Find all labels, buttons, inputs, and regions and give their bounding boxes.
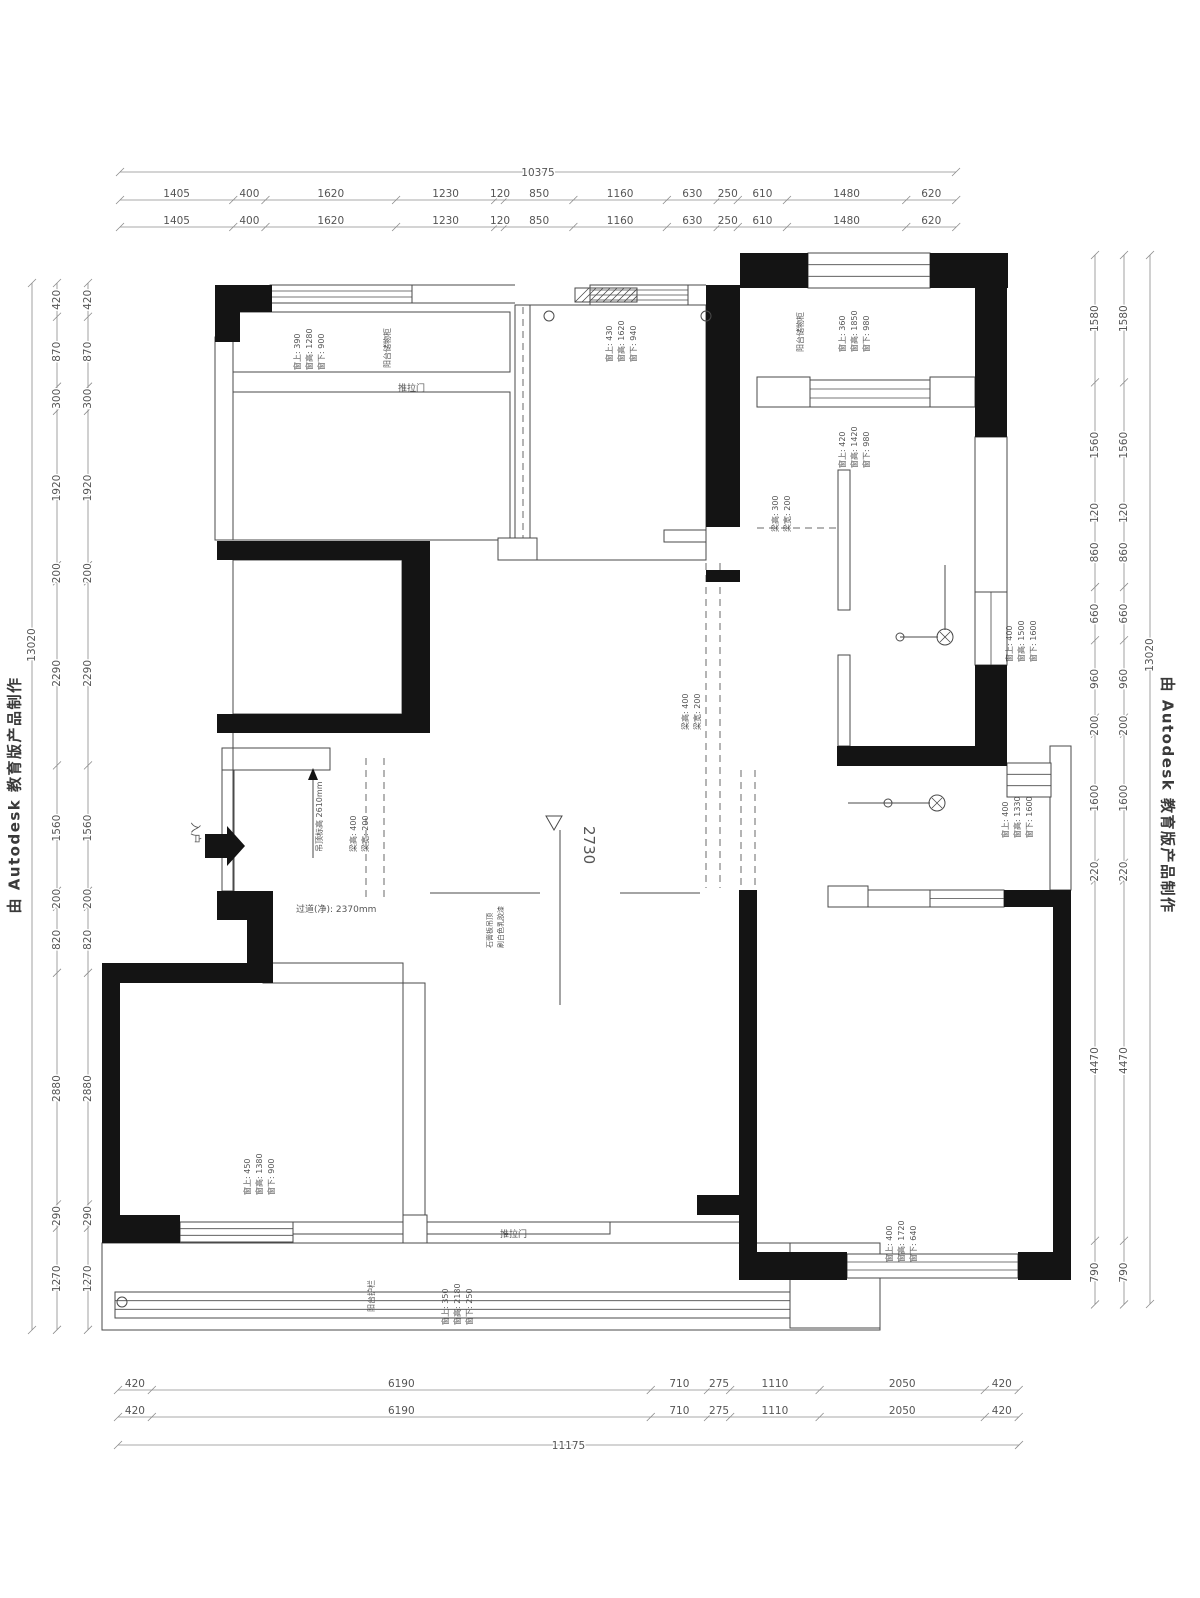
window-note-4-line: 窗下: 980 [861, 431, 871, 468]
hatch-line [575, 288, 589, 302]
dim-value: 1560 [51, 815, 63, 842]
dim-value: 300 [82, 389, 94, 409]
wall-segment [837, 746, 1007, 766]
dim-value: 870 [82, 342, 94, 362]
window-note-7-line: 窗下: 900 [266, 1158, 276, 1195]
window-note-8-line: 窗下: 250 [464, 1288, 474, 1325]
dim-value: 6190 [388, 1378, 415, 1390]
dim-value: 790 [1118, 1263, 1130, 1283]
window-note-2-line: 窗高: 1620 [616, 320, 626, 362]
window-symbol [180, 1222, 293, 1242]
cabinet-label-left-line: 阳台储物柜 [382, 328, 392, 368]
ceiling-finish-note: 石膏板吊顶刷白色乳胶漆 [485, 906, 505, 948]
wall-segment [102, 963, 120, 1243]
window-symbol [808, 253, 930, 288]
dim-value: 120 [490, 215, 510, 227]
dim-value: 1110 [762, 1405, 789, 1417]
dim-overall: 10375 [521, 167, 554, 179]
beam-note-1-line: 梁高: 400 [348, 815, 358, 852]
window-note-7-line: 窗上: 450 [242, 1158, 252, 1195]
wall-segment [739, 1252, 847, 1280]
dim-value: 870 [51, 342, 63, 362]
dim-value: 4470 [1089, 1047, 1101, 1074]
beam-note-1: 梁高: 400梁宽: 200 [348, 815, 370, 852]
window-note-2-line: 窗上: 430 [604, 325, 614, 362]
column-footing [828, 886, 868, 907]
dim-value: 2880 [51, 1075, 63, 1102]
window-note-7: 窗上: 450窗高: 1380窗下: 900 [242, 1153, 276, 1195]
dim-value: 2050 [889, 1378, 916, 1390]
dim-value: 790 [1089, 1263, 1101, 1283]
wall-segment [739, 890, 757, 1280]
window-note-5-line: 窗上: 400 [1004, 625, 1014, 662]
cabinet-label-left: 阳台储物柜 [382, 328, 392, 368]
dim-value: 420 [125, 1378, 145, 1390]
dim-value: 220 [1118, 862, 1130, 882]
cabinet-label-right: 阳台储物柜 [795, 312, 805, 352]
dim-value: 1480 [833, 215, 860, 227]
window-symbol [270, 285, 412, 303]
window-note-5-line: 窗下: 1600 [1028, 620, 1038, 662]
window-note-6-line: 窗上: 400 [1000, 801, 1010, 838]
dim-value: 200 [1089, 716, 1101, 736]
dim-value: 290 [82, 1206, 94, 1226]
dim-value: 400 [239, 215, 259, 227]
dim-value: 420 [992, 1405, 1012, 1417]
window-note-7-line: 窗高: 1380 [254, 1153, 264, 1195]
dim-value: 630 [682, 188, 702, 200]
ceiling-finish-note-line: 石膏板吊顶 [485, 913, 494, 948]
floorplan-page: 由 Autodesk 教育版产品制作 由 Autodesk 教育版产品制作 10… [0, 0, 1200, 1598]
window-note-3-line: 窗上: 360 [837, 315, 847, 352]
dim-value: 850 [529, 215, 549, 227]
dim-value: 1110 [762, 1378, 789, 1390]
dim-value: 860 [1118, 542, 1130, 562]
dim-value: 200 [82, 889, 94, 909]
wall-thin [293, 1222, 610, 1234]
window-note-6-line: 窗下: 1600 [1024, 796, 1034, 838]
dim-value: 290 [51, 1206, 63, 1226]
dim-value: 1405 [163, 215, 190, 227]
wall-thin [757, 377, 810, 407]
dim-value: 1600 [1089, 785, 1101, 812]
dim-value: 610 [752, 215, 772, 227]
ceiling-height-note: 吊顶标高 2610mm [314, 781, 324, 852]
window-note-9-line: 窗高: 1720 [896, 1220, 906, 1262]
beam-note-2-line: 梁宽: 200 [692, 693, 702, 730]
balcony-label: 阳台护栏 [366, 1280, 376, 1312]
dim-value: 6190 [388, 1405, 415, 1417]
elevation-marker-icon [546, 816, 562, 830]
dim-value: 620 [921, 215, 941, 227]
window-note-8-line: 窗高: 2180 [452, 1283, 462, 1325]
wall-thin [233, 392, 510, 540]
window-note-6-line: 窗高: 1330 [1012, 796, 1022, 838]
dim-value: 1480 [833, 188, 860, 200]
dim-value: 250 [718, 188, 738, 200]
window-note-1-line: 窗下: 900 [316, 333, 326, 370]
dim-value: 1560 [1118, 432, 1130, 459]
wall-segment [697, 1195, 740, 1215]
dim-value: 200 [51, 889, 63, 909]
window-note-3-line: 窗高: 1850 [849, 310, 859, 352]
dim-value: 420 [992, 1378, 1012, 1390]
beam-note-2-line: 梁高: 400 [680, 693, 690, 730]
wall-thin [263, 963, 403, 983]
dim-value: 820 [82, 930, 94, 950]
wall-segment [217, 891, 273, 920]
dim-value: 1920 [82, 475, 94, 502]
wall-thin [403, 983, 425, 1222]
window-note-1: 窗上: 390窗高: 1280窗下: 900 [292, 328, 326, 370]
ceiling-height-note-line: 吊顶标高 2610mm [314, 781, 324, 852]
dim-value: 960 [1118, 669, 1130, 689]
sliding-door-bottom-line: 推拉门 [500, 1228, 527, 1240]
dim-value: 1405 [163, 188, 190, 200]
dim-value: 660 [1118, 604, 1130, 624]
beam-note-1-line: 梁宽: 200 [360, 815, 370, 852]
window-note-1-line: 窗上: 390 [292, 333, 302, 370]
dim-overall: 11175 [552, 1440, 585, 1452]
dim-value: 660 [1089, 604, 1101, 624]
window-note-9-line: 窗下: 640 [908, 1225, 918, 1262]
dim-value: 275 [709, 1405, 729, 1417]
window-symbol [1007, 763, 1051, 797]
dim-value: 4470 [1118, 1047, 1130, 1074]
elevation-value-line: 2730 [580, 826, 598, 864]
dim-value: 1160 [607, 188, 634, 200]
window-note-1-line: 窗高: 1280 [304, 328, 314, 370]
sliding-door-top-line: 推拉门 [398, 382, 425, 394]
wall-segment [215, 285, 240, 342]
dim-value: 1230 [432, 215, 459, 227]
corridor-width: 过道(净): 2370mm [296, 903, 376, 915]
wall-segment [217, 714, 430, 733]
window-symbol [810, 380, 930, 407]
window-note-9-line: 窗上: 400 [884, 1225, 894, 1262]
dim-value: 1560 [1089, 432, 1101, 459]
elevation-value: 2730 [580, 826, 598, 864]
window-note-8: 窗上: 350窗高: 2180窗下: 250 [440, 1283, 474, 1325]
dim-value: 120 [1089, 503, 1101, 523]
dim-value: 420 [82, 290, 94, 310]
dim-value: 1560 [82, 815, 94, 842]
wall-thin [1050, 746, 1071, 890]
wall-thin [868, 890, 930, 907]
window-note-2: 窗上: 430窗高: 1620窗下: 940 [604, 320, 638, 362]
window-note-5-line: 窗高: 1500 [1016, 620, 1026, 662]
dim-value: 1620 [317, 215, 344, 227]
dim-value: 610 [752, 188, 772, 200]
dim-value: 2880 [82, 1075, 94, 1102]
dim-value: 420 [125, 1405, 145, 1417]
cabinet-label-right-line: 阳台储物柜 [795, 312, 805, 352]
window-note-2-line: 窗下: 940 [628, 325, 638, 362]
window-note-3-line: 窗下: 980 [861, 315, 871, 352]
window-note-5: 窗上: 400窗高: 1500窗下: 1600 [1004, 620, 1038, 662]
dim-value: 1160 [607, 215, 634, 227]
dim-value: 1580 [1089, 305, 1101, 332]
wall-thin [838, 470, 850, 610]
beam-note-3-line: 梁高: 300 [770, 495, 780, 532]
window-note-4-line: 窗高: 1420 [849, 426, 859, 468]
dim-value: 850 [529, 188, 549, 200]
dim-value: 820 [51, 930, 63, 950]
dim-value: 1580 [1118, 305, 1130, 332]
dim-value: 220 [1089, 862, 1101, 882]
column-footing [498, 538, 537, 560]
dim-value: 1270 [51, 1265, 63, 1292]
corridor-width-line: 过道(净): 2370mm [296, 903, 376, 915]
dim-value: 300 [51, 389, 63, 409]
wall-segment [402, 541, 430, 733]
window-symbol [847, 1254, 1018, 1278]
dim-value: 2290 [51, 660, 63, 687]
dim-value: 1920 [51, 475, 63, 502]
dim-value: 710 [669, 1378, 689, 1390]
door-leaf [664, 530, 706, 542]
floorplan-canvas: 1037514054001620123012085011606302506101… [0, 0, 1200, 1598]
ceiling-finish-note-line: 刷白色乳胶漆 [496, 906, 505, 948]
ring-symbol [544, 311, 554, 321]
dim-value: 275 [709, 1378, 729, 1390]
dim-value: 1230 [432, 188, 459, 200]
wall-thin [233, 560, 402, 714]
sliding-door-bottom: 推拉门 [500, 1228, 527, 1240]
beam-note-3: 梁高: 300梁宽: 200 [770, 495, 792, 532]
wall-segment [102, 963, 263, 983]
entry-label: 入户 [189, 822, 203, 844]
wall-segment [706, 570, 740, 582]
dim-value: 1270 [82, 1265, 94, 1292]
dim-overall: 13020 [26, 628, 38, 661]
column-footing [403, 1215, 427, 1243]
dim-value: 620 [921, 188, 941, 200]
wall-segment [1018, 1252, 1071, 1280]
wall-segment [740, 253, 808, 288]
dim-value: 200 [1118, 716, 1130, 736]
wall-segment [706, 285, 740, 527]
wall-thin [975, 437, 1007, 592]
wall-thin [215, 337, 233, 540]
wall-segment [217, 541, 430, 560]
entry-label-line: 入户 [189, 822, 203, 844]
dim-value: 630 [682, 215, 702, 227]
dim-value: 120 [1118, 503, 1130, 523]
wall-segment [1053, 890, 1071, 1280]
wall-thin [930, 377, 975, 407]
entry-arrow-icon [205, 826, 245, 866]
window-note-6: 窗上: 400窗高: 1330窗下: 1600 [1000, 796, 1034, 838]
dim-value: 200 [82, 563, 94, 583]
window-note-3: 窗上: 360窗高: 1850窗下: 980 [837, 310, 871, 352]
wall-thin [233, 312, 510, 372]
sliding-door-top: 推拉门 [398, 382, 425, 394]
dim-value: 710 [669, 1405, 689, 1417]
wall-segment [975, 272, 1007, 437]
dim-value: 120 [490, 188, 510, 200]
dim-value: 250 [718, 215, 738, 227]
dim-value: 860 [1089, 542, 1101, 562]
window-note-4: 窗上: 420窗高: 1420窗下: 980 [837, 426, 871, 468]
beam-note-3-line: 梁宽: 200 [782, 495, 792, 532]
window-note-8-line: 窗上: 350 [440, 1288, 450, 1325]
dim-value: 2050 [889, 1405, 916, 1417]
window-note-9: 窗上: 400窗高: 1720窗下: 640 [884, 1220, 918, 1262]
dim-value: 960 [1089, 669, 1101, 689]
balcony-label-line: 阳台护栏 [366, 1280, 376, 1312]
dim-value: 200 [51, 563, 63, 583]
beam-note-2: 梁高: 400梁宽: 200 [680, 693, 702, 730]
window-note-4-line: 窗上: 420 [837, 431, 847, 468]
wall-segment [102, 1215, 180, 1243]
dim-overall: 13020 [1144, 638, 1156, 671]
dim-value: 1600 [1118, 785, 1130, 812]
dim-value: 2290 [82, 660, 94, 687]
dim-value: 1620 [317, 188, 344, 200]
wall-thin [838, 655, 850, 746]
dim-value: 420 [51, 290, 63, 310]
wall-thin [222, 748, 330, 770]
dim-value: 400 [239, 188, 259, 200]
